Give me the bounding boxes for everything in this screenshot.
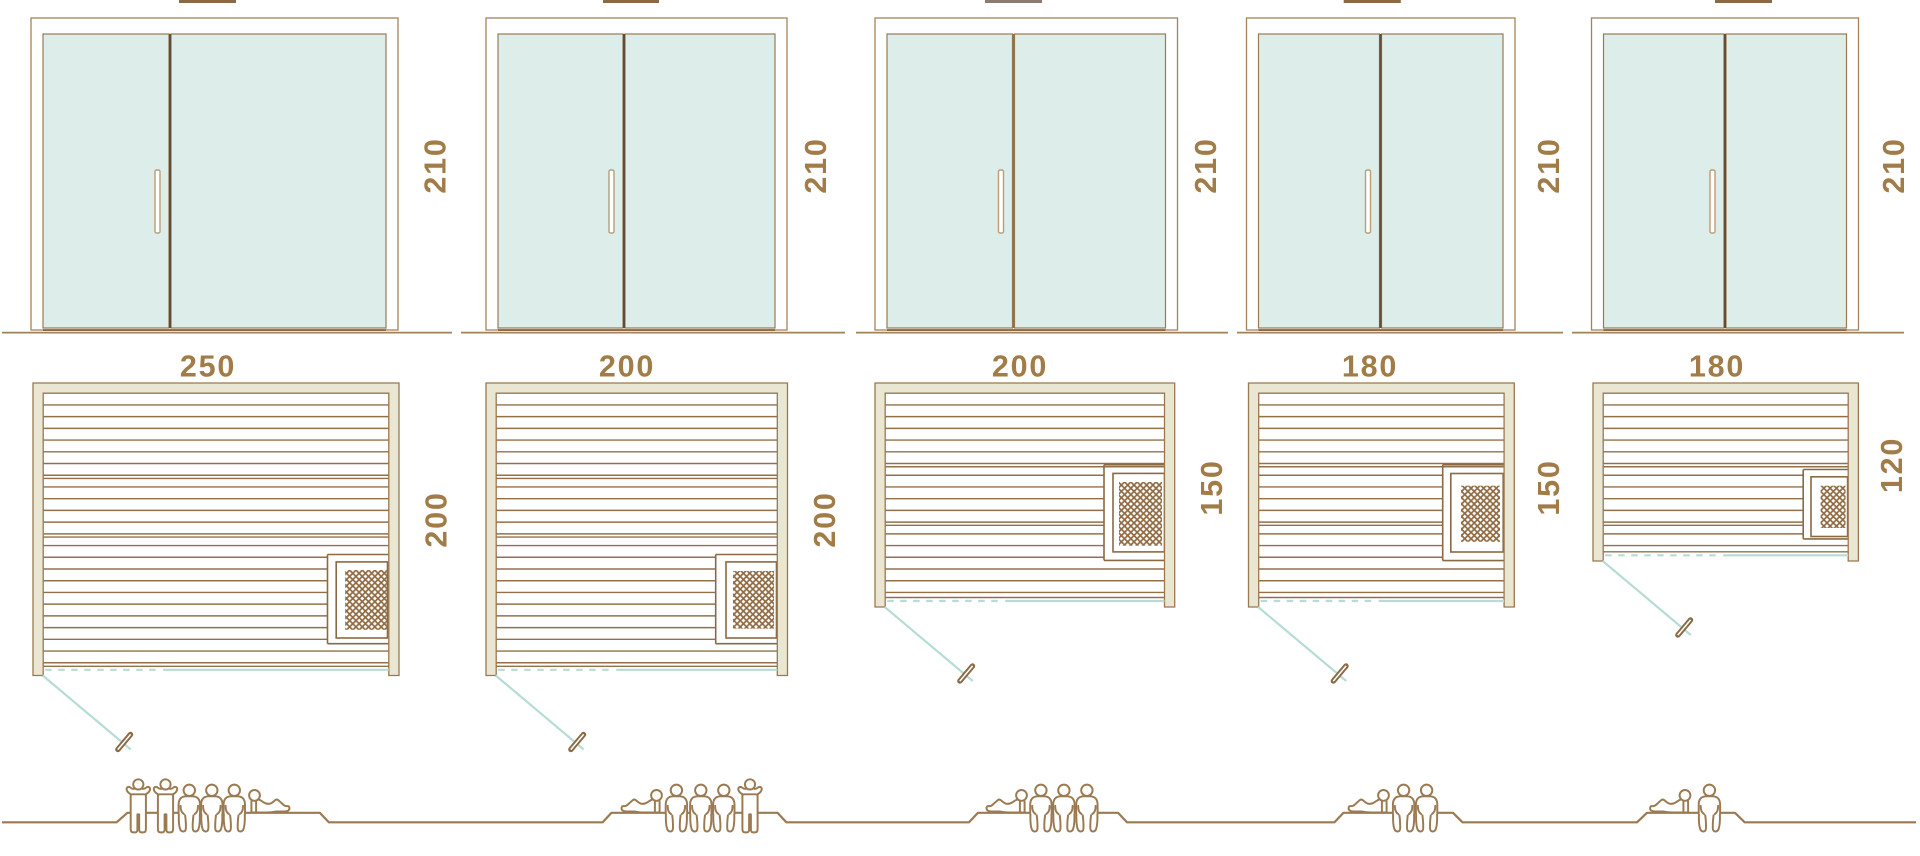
svg-text:250: 250 <box>180 350 236 384</box>
svg-text:210: 210 <box>1189 137 1223 193</box>
svg-text:180: 180 <box>1342 350 1398 384</box>
svg-text:200: 200 <box>599 350 655 384</box>
svg-text:210: 210 <box>1877 137 1911 193</box>
svg-text:120: 120 <box>1875 437 1909 493</box>
svg-text:150: 150 <box>1532 459 1566 515</box>
svg-text:200: 200 <box>992 350 1048 384</box>
svg-text:200: 200 <box>420 491 454 547</box>
svg-text:210: 210 <box>1532 137 1566 193</box>
svg-text:200: 200 <box>808 491 842 547</box>
svg-text:210: 210 <box>419 137 453 193</box>
svg-text:180: 180 <box>1689 350 1745 384</box>
svg-text:150: 150 <box>1195 459 1229 515</box>
svg-text:210: 210 <box>799 137 833 193</box>
